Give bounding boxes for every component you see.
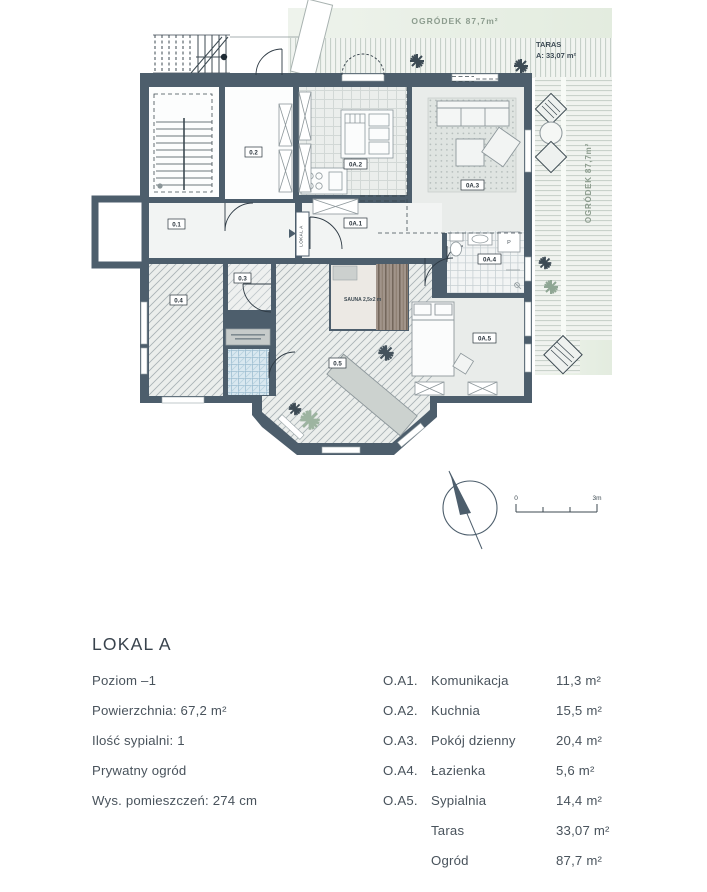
room-name: Taras <box>431 823 464 838</box>
room-code: O.A2. <box>383 703 418 718</box>
room-name: Pokój dzienny <box>431 733 516 748</box>
room-area: 15,5 m² <box>556 703 602 718</box>
room-area: 87,7 m² <box>556 853 602 868</box>
spec-garden: Prywatny ogród <box>92 763 186 778</box>
page-title: LOKAL A <box>92 634 172 655</box>
unit-details-section: LOKAL A Poziom –1 Powierzchnia: 67,2 m² … <box>0 0 707 892</box>
room-name: Ogród <box>431 853 469 868</box>
room-code: O.A4. <box>383 763 418 778</box>
spec-level: Poziom –1 <box>92 673 156 688</box>
spec-bedrooms: Ilość sypialni: 1 <box>92 733 185 748</box>
room-name: Kuchnia <box>431 703 480 718</box>
room-name: Sypialnia <box>431 793 486 808</box>
room-name: Łazienka <box>431 763 485 778</box>
floorplan-page: OGRÓDEK 87,7m² OGRÓDEK 87,7m² TARAS A: 3… <box>0 0 707 892</box>
room-code: O.A5. <box>383 793 418 808</box>
room-area: 11,3 m² <box>556 673 601 688</box>
room-area: 5,6 m² <box>556 763 595 778</box>
spec-area: Powierzchnia: 67,2 m² <box>92 703 227 718</box>
room-area: 33,07 m² <box>556 823 610 838</box>
room-area: 14,4 m² <box>556 793 602 808</box>
room-code: O.A1. <box>383 673 418 688</box>
room-area: 20,4 m² <box>556 733 602 748</box>
room-code: O.A3. <box>383 733 418 748</box>
spec-ceiling-height: Wys. pomieszczeń: 274 cm <box>92 793 257 808</box>
room-name: Komunikacja <box>431 673 509 688</box>
